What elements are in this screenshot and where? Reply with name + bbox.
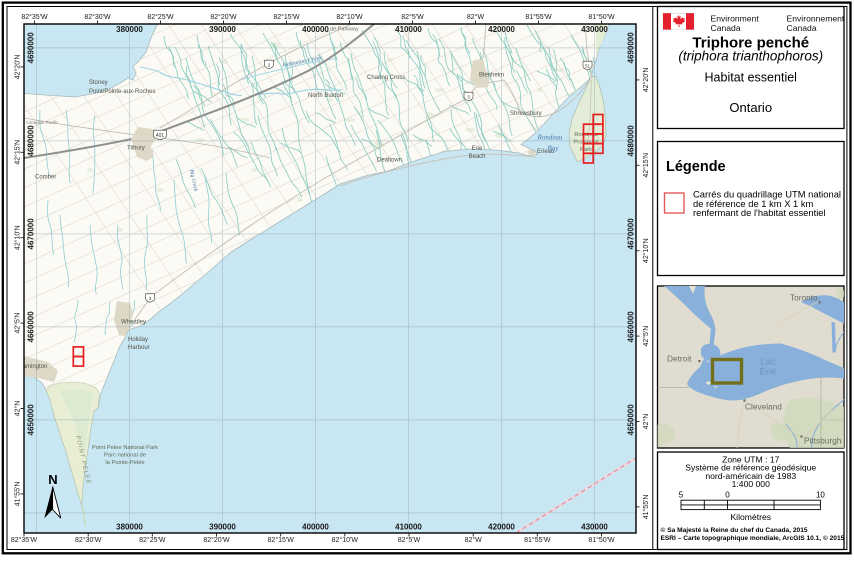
- svg-text:42°N: 42°N: [14, 401, 22, 417]
- svg-text:82°10'W: 82°10'W: [332, 536, 359, 544]
- svg-text:41°55'N: 41°55'N: [642, 495, 650, 520]
- svg-text:Detroit: Detroit: [667, 354, 692, 364]
- svg-text:4690000: 4690000: [627, 32, 636, 64]
- svg-text:81°50'W: 81°50'W: [588, 13, 615, 21]
- svg-text:82°25'W: 82°25'W: [139, 536, 166, 544]
- svg-text:Rondeau: Rondeau: [574, 132, 598, 138]
- svg-text:Bay: Bay: [548, 145, 560, 153]
- svg-text:Beach: Beach: [468, 154, 485, 160]
- svg-text:Érié: Érié: [760, 367, 777, 378]
- svg-text:82°30'W: 82°30'W: [75, 536, 102, 544]
- svg-text:42°N: 42°N: [642, 414, 650, 430]
- svg-text:Canada: Canada: [787, 23, 817, 33]
- svg-text:82°5'W: 82°5'W: [398, 536, 421, 544]
- svg-text:430000: 430000: [581, 25, 608, 34]
- svg-text:renfermant de l'habitat essent: renfermant de l'habitat essentiel: [693, 207, 826, 218]
- svg-text:3: 3: [467, 94, 470, 99]
- svg-text:81°50'W: 81°50'W: [588, 536, 615, 544]
- svg-text:4680000: 4680000: [627, 125, 636, 157]
- svg-text:4650000: 4650000: [627, 404, 636, 436]
- svg-text:42°15'N: 42°15'N: [642, 153, 650, 178]
- svg-text:Comber: Comber: [35, 175, 56, 181]
- svg-text:Dealtown: Dealtown: [377, 158, 402, 164]
- svg-text:3: 3: [149, 296, 152, 301]
- svg-text:82°15'W: 82°15'W: [273, 13, 300, 21]
- svg-text:ESRI – Carte topographique mon: ESRI – Carte topographique mondiale, Arc…: [661, 534, 845, 542]
- svg-text:Holiday: Holiday: [128, 337, 148, 343]
- svg-text:Charing Cross: Charing Cross: [367, 75, 405, 81]
- svg-text:380000: 380000: [116, 523, 143, 532]
- svg-text:Tilbury: Tilbury: [127, 146, 145, 152]
- svg-text:380000: 380000: [116, 25, 143, 34]
- svg-text:401: 401: [156, 133, 165, 139]
- svg-text:Harbour: Harbour: [128, 345, 150, 351]
- svg-text:410000: 410000: [395, 25, 422, 34]
- svg-text:Pittsburgh: Pittsburgh: [804, 436, 842, 446]
- svg-text:82°5'W: 82°5'W: [401, 13, 424, 21]
- svg-text:410000: 410000: [395, 523, 422, 532]
- svg-text:la Pointe-Pelée: la Pointe-Pelée: [105, 460, 144, 466]
- svg-text:Ontario: Ontario: [729, 100, 772, 115]
- svg-text:Blenheim: Blenheim: [479, 73, 504, 79]
- svg-text:10: 10: [816, 491, 825, 500]
- svg-text:© Sa Majesté la Reine du chef: © Sa Majesté la Reine du chef du Canada,…: [661, 526, 808, 534]
- svg-text:400000: 400000: [302, 25, 329, 34]
- svg-text:Wheatley: Wheatley: [121, 320, 146, 326]
- svg-text:Point/Pointe-aux-Roches: Point/Pointe-aux-Roches: [89, 89, 155, 95]
- svg-text:81°55'W: 81°55'W: [525, 13, 552, 21]
- svg-text:82°W: 82°W: [465, 536, 483, 544]
- svg-text:42°5'N: 42°5'N: [642, 326, 650, 347]
- svg-text:400000: 400000: [302, 523, 329, 532]
- svg-text:Environnement: Environnement: [787, 14, 845, 24]
- svg-text:82°25'W: 82°25'W: [147, 13, 174, 21]
- svg-text:420000: 420000: [488, 523, 515, 532]
- svg-text:390000: 390000: [209, 523, 236, 532]
- svg-text:42°15'N: 42°15'N: [14, 140, 22, 165]
- svg-text:4690000: 4690000: [27, 32, 36, 64]
- svg-text:420000: 420000: [488, 25, 515, 34]
- svg-text:82°35'W: 82°35'W: [11, 536, 38, 544]
- svg-text:4680000: 4680000: [27, 125, 36, 157]
- svg-text:0: 0: [725, 491, 730, 500]
- svg-text:4650000: 4650000: [27, 404, 36, 436]
- svg-text:(triphora trianthophoros): (triphora trianthophoros): [678, 49, 823, 64]
- svg-text:82°30'W: 82°30'W: [84, 13, 111, 21]
- svg-text:Canadian Pacific: Canadian Pacific: [26, 120, 59, 125]
- svg-text:430000: 430000: [581, 523, 608, 532]
- svg-text:42°5'N: 42°5'N: [14, 313, 22, 334]
- svg-text:5: 5: [679, 491, 684, 500]
- svg-text:Cleveland: Cleveland: [745, 402, 782, 412]
- svg-text:Toronto: Toronto: [790, 293, 818, 303]
- svg-text:4660000: 4660000: [627, 311, 636, 343]
- svg-text:81°55'W: 81°55'W: [524, 536, 551, 544]
- svg-text:42°20'N: 42°20'N: [642, 68, 650, 93]
- svg-text:Légende: Légende: [666, 159, 726, 175]
- svg-text:N: N: [48, 472, 57, 487]
- svg-text:2: 2: [268, 62, 271, 67]
- svg-text:82°20'W: 82°20'W: [210, 13, 237, 21]
- svg-text:Provincial: Provincial: [573, 140, 598, 146]
- svg-text:Habitat essentiel: Habitat essentiel: [705, 71, 797, 85]
- svg-text:4670000: 4670000: [27, 218, 36, 250]
- svg-text:Stoney: Stoney: [89, 80, 108, 86]
- svg-text:Point Pelee National Park: Point Pelee National Park: [92, 445, 158, 451]
- svg-text:42°10'N: 42°10'N: [14, 225, 22, 250]
- svg-text:390000: 390000: [209, 25, 236, 34]
- svg-text:North Buxton: North Buxton: [308, 93, 343, 99]
- svg-text:51: 51: [585, 63, 591, 68]
- svg-text:Kilomètres: Kilomètres: [730, 512, 771, 522]
- svg-text:4670000: 4670000: [627, 218, 636, 250]
- svg-text:Park: Park: [580, 147, 592, 153]
- svg-text:82°15'W: 82°15'W: [268, 536, 295, 544]
- svg-text:4660000: 4660000: [27, 311, 36, 343]
- svg-text:82°20'W: 82°20'W: [203, 536, 230, 544]
- svg-text:42°10'N: 42°10'N: [642, 238, 650, 263]
- svg-text:42°20'N: 42°20'N: [14, 55, 22, 80]
- svg-text:Erie: Erie: [472, 146, 483, 152]
- svg-text:82°35'W: 82°35'W: [21, 13, 48, 21]
- svg-text:1:400 000: 1:400 000: [732, 479, 770, 489]
- svg-text:82°W: 82°W: [467, 13, 485, 21]
- svg-text:Canada: Canada: [711, 23, 741, 33]
- svg-text:de Parkway: de Parkway: [330, 27, 359, 33]
- svg-text:Rondeau: Rondeau: [537, 134, 563, 142]
- svg-text:Environment: Environment: [711, 14, 760, 24]
- svg-text:Shrewsbury: Shrewsbury: [510, 111, 542, 117]
- svg-text:41°55'N: 41°55'N: [14, 482, 22, 507]
- svg-text:82°10'W: 82°10'W: [336, 13, 363, 21]
- svg-text:Parc national de: Parc national de: [104, 453, 146, 459]
